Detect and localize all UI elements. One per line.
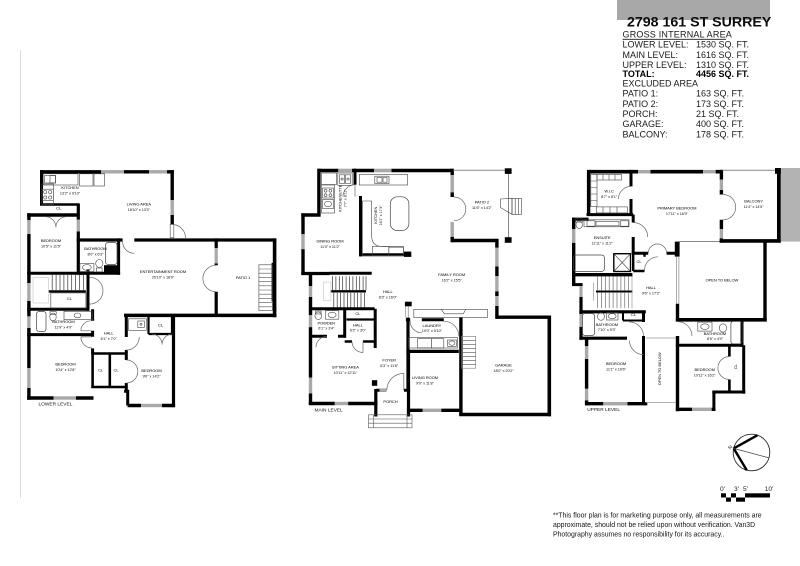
svg-text:17'11" x 16'9": 17'11" x 16'9" xyxy=(666,212,689,216)
svg-text:1616 SQ. FT.: 1616 SQ. FT. xyxy=(696,50,749,60)
svg-text:HALL: HALL xyxy=(353,322,364,327)
svg-text:GARAGE: GARAGE xyxy=(495,362,512,367)
svg-text:6'3" x 11'8": 6'3" x 11'8" xyxy=(380,364,399,368)
svg-text:5': 5' xyxy=(743,486,748,493)
svg-text:11'11" x 11'2": 11'11" x 11'2" xyxy=(592,241,614,245)
svg-text:DINING ROOM: DINING ROOM xyxy=(316,238,343,243)
svg-text:LIVING ROOM: LIVING ROOM xyxy=(412,375,438,380)
svg-text:HALL: HALL xyxy=(646,285,657,290)
svg-text:LIVING AREA: LIVING AREA xyxy=(127,201,152,206)
svg-text:PORCH: PORCH xyxy=(383,399,397,404)
svg-text:LOWER LEVEL: LOWER LEVEL xyxy=(39,402,73,408)
svg-text:ENTERTAINMENT ROOM: ENTERTAINMENT ROOM xyxy=(140,269,186,274)
svg-text:173 SQ. FT.: 173 SQ. FT. xyxy=(696,99,744,109)
svg-text:7'10" x 5'3": 7'10" x 5'3" xyxy=(598,328,617,332)
svg-text:BATHROOM: BATHROOM xyxy=(704,331,726,336)
svg-text:7'7" x 8'11": 7'7" x 8'11" xyxy=(344,189,348,208)
svg-text:CL: CL xyxy=(67,296,73,301)
svg-text:11'9" x 4'9": 11'9" x 4'9" xyxy=(54,325,73,329)
svg-text:BEDROOM: BEDROOM xyxy=(606,361,626,366)
svg-text:PATIO 2:: PATIO 2: xyxy=(623,99,659,109)
svg-text:18'0" x 20'2": 18'0" x 20'2" xyxy=(493,369,514,373)
svg-text:BEDROOM: BEDROOM xyxy=(55,361,75,366)
svg-text:Photography assumes no respons: Photography assumes no responsibility fo… xyxy=(553,532,725,539)
svg-text:BEDROOM: BEDROOM xyxy=(41,238,61,243)
svg-text:BALCONY: BALCONY xyxy=(744,198,763,203)
svg-text:18'10" x 13'3": 18'10" x 13'3" xyxy=(128,208,151,212)
svg-text:GARAGE:: GARAGE: xyxy=(623,119,664,129)
svg-text:BATHROOM: BATHROOM xyxy=(52,319,74,324)
svg-text:ENSUITE: ENSUITE xyxy=(594,235,611,240)
svg-text:MAIN LEVEL:: MAIN LEVEL: xyxy=(623,50,679,60)
svg-text:PATIO 1: PATIO 1 xyxy=(236,275,251,280)
svg-text:KITCHENETTE: KITCHENETTE xyxy=(338,184,343,212)
svg-text:LAUNDRY: LAUNDRY xyxy=(423,323,442,328)
svg-text:CL: CL xyxy=(158,322,164,327)
svg-text:400 SQ. FT.: 400 SQ. FT. xyxy=(696,119,744,129)
svg-text:13'2" x 9'10": 13'2" x 9'10" xyxy=(60,191,81,195)
svg-text:9'0" x 11'8": 9'0" x 11'8" xyxy=(416,381,435,385)
svg-text:BEDROOM: BEDROOM xyxy=(695,367,715,372)
svg-text:CL: CL xyxy=(56,206,62,211)
svg-text:PRIMARY BEDROOM: PRIMARY BEDROOM xyxy=(657,205,696,210)
svg-text:PORCH:: PORCH: xyxy=(623,109,658,119)
svg-text:W.I.C: W.I.C xyxy=(604,188,614,193)
svg-text:2798 161 ST SURREY: 2798 161 ST SURREY xyxy=(627,15,772,31)
svg-text:POWDER: POWDER xyxy=(317,320,335,325)
svg-text:9'6" x 17'2": 9'6" x 17'2" xyxy=(642,291,661,295)
svg-text:16'1" x 17'4": 16'1" x 17'4" xyxy=(379,205,383,226)
svg-text:CL: CL xyxy=(733,363,738,369)
svg-text:CL: CL xyxy=(113,367,119,372)
svg-text:CL: CL xyxy=(631,312,637,317)
svg-text:6'1" x 3'4": 6'1" x 3'4" xyxy=(318,326,335,330)
svg-text:10'0" x 5'10": 10'0" x 5'10" xyxy=(422,329,443,333)
svg-text:UPPER LEVEL: UPPER LEVEL xyxy=(587,407,620,413)
svg-text:**This floor plan is for marke: **This floor plan is for marketing purpo… xyxy=(553,512,762,519)
svg-text:10'4" x 12'8": 10'4" x 12'8" xyxy=(55,368,76,372)
svg-text:16'2" x 15'5": 16'2" x 15'5" xyxy=(442,278,463,282)
svg-text:HALL: HALL xyxy=(104,330,115,335)
svg-text:PATIO 2: PATIO 2 xyxy=(475,199,490,204)
svg-text:3': 3' xyxy=(734,486,739,493)
svg-text:FAMILY ROOM: FAMILY ROOM xyxy=(438,272,465,277)
svg-text:9'6" x 14'2": 9'6" x 14'2" xyxy=(142,374,161,378)
svg-text:8'0" x 6'3": 8'0" x 6'3" xyxy=(87,252,104,256)
svg-text:LOWER LEVEL:: LOWER LEVEL: xyxy=(623,40,689,50)
svg-text:KITCHEN: KITCHEN xyxy=(373,207,378,224)
svg-text:MAIN LEVEL: MAIN LEVEL xyxy=(315,408,344,414)
svg-text:4456 SQ. FT.: 4456 SQ. FT. xyxy=(696,69,749,79)
svg-text:11'1" x 16'6": 11'1" x 16'6" xyxy=(606,367,627,371)
svg-text:SITTING AREA: SITTING AREA xyxy=(332,364,359,369)
svg-text:6'1" x 7'0": 6'1" x 7'0" xyxy=(101,337,118,341)
svg-text:BATHROOM: BATHROOM xyxy=(596,322,618,327)
svg-text:BALCONY:: BALCONY: xyxy=(623,129,668,139)
svg-text:10'5" x 11'5": 10'5" x 11'5" xyxy=(41,244,62,248)
svg-text:EXCLUDED AREA: EXCLUDED AREA xyxy=(623,78,699,88)
svg-text:BATHROOM: BATHROOM xyxy=(84,246,106,251)
svg-text:10'11" x 16'2": 10'11" x 16'2" xyxy=(694,373,717,377)
svg-text:OPEN TO BELOW: OPEN TO BELOW xyxy=(706,277,739,282)
svg-text:CL: CL xyxy=(98,367,104,372)
svg-text:HALL: HALL xyxy=(383,289,394,294)
svg-text:PATIO 1:: PATIO 1: xyxy=(623,89,659,99)
svg-text:OPEN TO BELOW: OPEN TO BELOW xyxy=(657,352,662,385)
svg-text:1530 SQ. FT.: 1530 SQ. FT. xyxy=(696,40,749,50)
svg-text:0': 0' xyxy=(720,486,725,493)
svg-text:8'7" x 8'1": 8'7" x 8'1" xyxy=(601,195,618,199)
svg-text:BEDROOM: BEDROOM xyxy=(141,368,161,373)
svg-text:GROSS INTERNAL AREA: GROSS INTERNAL AREA xyxy=(623,29,733,39)
svg-text:FOYER: FOYER xyxy=(382,357,396,362)
svg-text:10': 10' xyxy=(765,486,774,493)
svg-text:6'2" x 3'0": 6'2" x 3'0" xyxy=(350,328,367,332)
svg-text:CL: CL xyxy=(355,311,361,316)
svg-text:163 SQ. FT.: 163 SQ. FT. xyxy=(696,89,744,99)
svg-text:11'0" x 11'2": 11'0" x 11'2" xyxy=(320,245,340,249)
svg-text:KITCHEN: KITCHEN xyxy=(61,185,78,190)
svg-text:8'6" x 4'9": 8'6" x 4'9" xyxy=(707,337,724,341)
svg-text:8'3" x 16'0": 8'3" x 16'0" xyxy=(379,295,398,299)
svg-text:21 SQ. FT.: 21 SQ. FT. xyxy=(696,109,739,119)
svg-text:CL: CL xyxy=(636,259,642,264)
svg-text:approximate, should not be rel: approximate, should not be relied upon w… xyxy=(553,522,755,529)
svg-text:11'4" x 14'5": 11'4" x 14'5" xyxy=(744,205,765,209)
svg-text:25'10" x 18'9": 25'10" x 18'9" xyxy=(152,275,175,279)
svg-text:178 SQ. FT.: 178 SQ. FT. xyxy=(696,129,744,139)
svg-text:11'6" x 14'2": 11'6" x 14'2" xyxy=(472,206,493,210)
svg-text:10'11" x 12'11": 10'11" x 12'11" xyxy=(334,371,358,375)
